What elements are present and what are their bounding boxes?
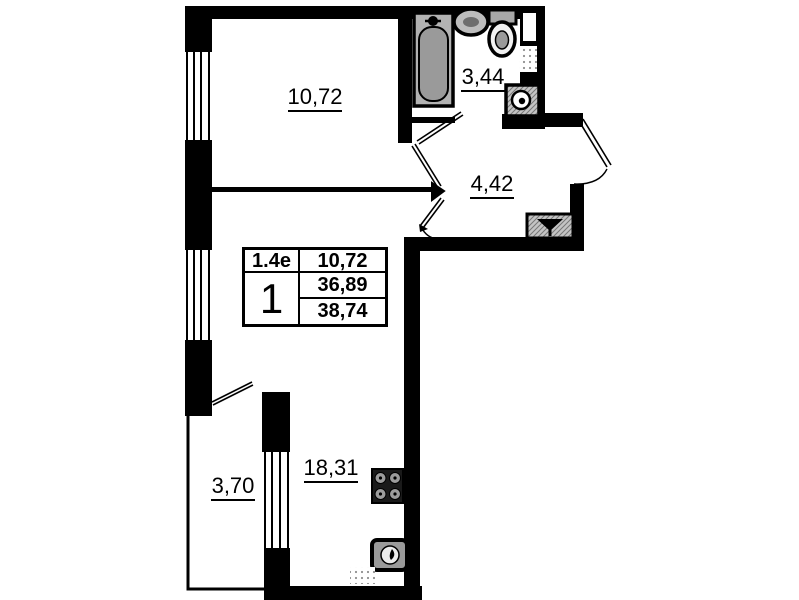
left-wall-middle [185, 140, 212, 250]
left-wall-top-corner [185, 6, 212, 52]
living-room-door-swing [420, 198, 444, 239]
washbasin-icon [454, 8, 489, 35]
stove-icon [372, 469, 403, 503]
bedroom-right-wall [398, 6, 412, 143]
unit-living-area: 36,89 [300, 273, 385, 299]
unit-first-room-area: 10,72 [300, 250, 385, 273]
balcony-partition-top [262, 392, 290, 452]
balcony-partition-bottom [264, 548, 290, 590]
balcony-window [265, 452, 288, 548]
unit-total-area: 38,74 [300, 299, 385, 325]
kitchen-sink-icon [372, 540, 407, 570]
bathroom-door-swing [417, 112, 463, 144]
kitchen-vent-hatch [350, 567, 375, 584]
unit-info-table: 1.4e 10,72 1 36,89 38,74 [242, 247, 388, 327]
bedroom-area-label: 10,72 [287, 84, 342, 109]
bathtub-icon [414, 13, 453, 106]
kitchen-living-area-label: 18,31 [303, 455, 358, 480]
door-jamb-point [432, 183, 444, 200]
entrance-door-swing [574, 119, 611, 184]
bedroom-window [187, 52, 209, 140]
unit-room-count: 1 [245, 273, 300, 324]
toilet-icon [489, 10, 516, 56]
bedroom-living-divider-wall [212, 187, 434, 192]
washing-machine-icon [506, 85, 539, 116]
bathroom-vent-hatch [519, 46, 537, 72]
bathroom-area-label: 3,44 [462, 64, 505, 89]
floor-plan-drawing: 10,72 3,44 4,42 18,31 3,70 [0, 0, 799, 600]
left-wall-lower [185, 340, 212, 416]
electrical-panel-icon [527, 214, 573, 238]
living-room-window [187, 250, 209, 340]
balcony-outline [188, 414, 265, 589]
hallway-area-label: 4,42 [471, 171, 514, 196]
unit-type-code: 1.4e [245, 250, 300, 273]
bedroom-door-swing [412, 144, 441, 188]
bathroom-wall-niche [523, 13, 536, 41]
balcony-door-swing [212, 382, 253, 405]
floor-plan-canvas: 10,72 3,44 4,42 18,31 3,70 1.4e 10,72 1 … [0, 0, 799, 600]
balcony-area-label: 3,70 [212, 473, 255, 498]
